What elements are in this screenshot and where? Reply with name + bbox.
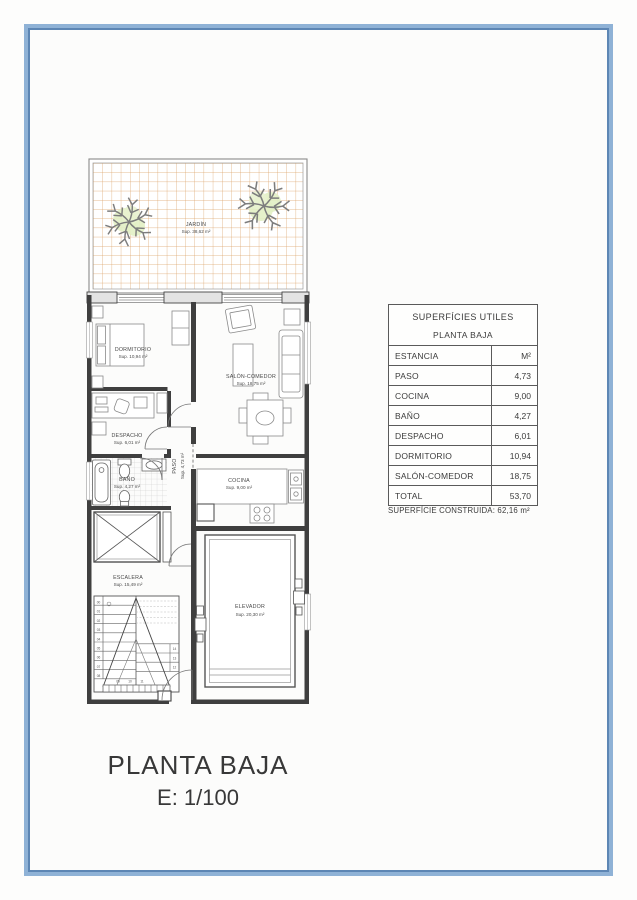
armchair-icon: [225, 305, 256, 333]
row-value: 9,00: [491, 386, 537, 405]
step-number: 08: [97, 674, 101, 678]
escalera-label: ESCALERA: [113, 575, 143, 581]
room-elevador: [195, 535, 305, 687]
cocina-label: COCINA: [228, 478, 250, 484]
floor-plan-drawing: JARDÍN Sup. 38,62 m²: [84, 154, 314, 714]
table-row: TOTAL 53,70: [389, 485, 537, 505]
dining-table-icon: [239, 393, 291, 444]
escalera-sup: Sup. 15,49 m²: [114, 582, 143, 587]
step-number: 14: [173, 647, 177, 651]
stove-icon: [250, 504, 274, 523]
plan-title-block: PLANTA BAJA E: 1/100: [78, 750, 318, 811]
column-header-estancia: ESTANCIA: [389, 351, 491, 361]
row-label: TOTAL: [389, 491, 491, 501]
dormitorio-sup: Sup. 10,94 m²: [119, 354, 148, 359]
step-number: 02: [97, 619, 101, 623]
despacho-label: DESPACHO: [112, 433, 143, 439]
staircase-icon: 00 01 02 03 04 05 06 07 08 09 10 11 12 1…: [94, 596, 179, 692]
table-row: DORMITORIO 10,94: [389, 445, 537, 465]
bano-label: BAÑO: [119, 476, 135, 483]
step-number: 09: [116, 680, 120, 684]
table-row: SALÓN-COMEDOR 18,75: [389, 465, 537, 485]
jardin-label: JARDÍN: [186, 221, 206, 228]
step-number: 05: [97, 647, 101, 651]
room-cocina: [197, 469, 304, 523]
room-despacho: [92, 393, 167, 435]
elevador-sup: Sup. 20,30 m²: [236, 612, 265, 617]
plan-scale: E: 1/100: [78, 785, 318, 811]
salon-sup: Sup. 18,75 m²: [237, 381, 266, 386]
table-header: SUPERFÍCIES UTILES PLANTA BAJA: [389, 305, 537, 345]
table-subtitle: PLANTA BAJA: [389, 330, 537, 340]
plan-title: PLANTA BAJA: [78, 750, 318, 781]
paso-label: PASO: [172, 458, 178, 473]
built-surface-note: SUPERFÍCIE CONSTRUIDA: 62,16 m²: [388, 506, 558, 515]
elevator-platform-icon: [205, 535, 295, 687]
row-value: 4,27: [491, 406, 537, 425]
cocina-sup: Sup. 9,00 m²: [226, 485, 253, 490]
step-number: 10: [128, 680, 132, 684]
dormitorio-label: DORMITORIO: [115, 347, 151, 353]
elevador-label: ELEVADOR: [235, 604, 265, 610]
row-value: 18,75: [491, 466, 537, 485]
scanned-plan-page: JARDÍN Sup. 38,62 m²: [0, 0, 637, 900]
row-value: 53,70: [491, 486, 537, 505]
step-number: 03: [97, 628, 101, 632]
despacho-sup: Sup. 6,01 m²: [114, 440, 141, 445]
table-column-header-row: ESTANCIA M²: [389, 345, 537, 365]
step-number: 12: [173, 666, 177, 670]
row-value: 10,94: [491, 446, 537, 465]
step-number: 07: [97, 665, 101, 669]
table-title: SUPERFÍCIES UTILES: [389, 312, 537, 322]
front-wall: [87, 292, 309, 303]
paso-sup: Sup. 4,73 m²: [180, 452, 185, 479]
row-label: COCINA: [389, 391, 491, 401]
row-label: DORMITORIO: [389, 451, 491, 461]
table-row: BAÑO 4,27: [389, 405, 537, 425]
row-label: SALÓN-COMEDOR: [389, 471, 491, 481]
jardin-sup: Sup. 38,62 m²: [182, 229, 211, 234]
step-number: 06: [97, 656, 101, 660]
surfaces-table: SUPERFÍCIES UTILES PLANTA BAJA ESTANCIA …: [388, 304, 538, 506]
row-label: DESPACHO: [389, 431, 491, 441]
entry-column: [158, 691, 171, 701]
step-number: 04: [97, 637, 101, 641]
table-row: PASO 4,73: [389, 365, 537, 385]
step-number: 01: [97, 610, 101, 614]
row-label: PASO: [389, 371, 491, 381]
table-row: COCINA 9,00: [389, 385, 537, 405]
step-number: 00: [97, 601, 101, 605]
step-number: 11: [140, 680, 144, 684]
row-label: BAÑO: [389, 411, 491, 421]
table-row: DESPACHO 6,01: [389, 425, 537, 445]
column-header-m2: M²: [491, 346, 537, 365]
room-jardin: JARDÍN Sup. 38,62 m²: [89, 159, 307, 293]
patio-shaft: [94, 512, 171, 562]
bano-sup: Sup. 4,27 m²: [114, 484, 141, 489]
row-value: 6,01: [491, 426, 537, 445]
side-table-icon: [284, 309, 300, 325]
step-number: 13: [173, 656, 177, 660]
salon-label: SALÓN-COMEDOR: [226, 373, 276, 380]
row-value: 4,73: [491, 366, 537, 385]
